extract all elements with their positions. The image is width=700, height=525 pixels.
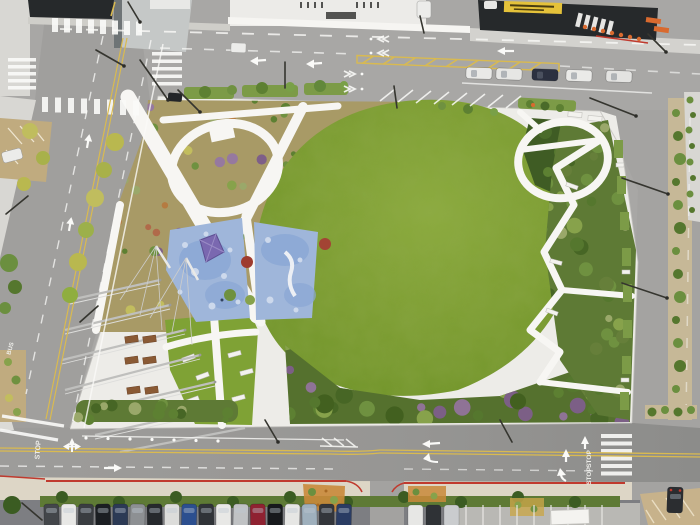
tree (153, 229, 161, 237)
stop-marking-right-1: STOP (586, 450, 593, 468)
median-tree (672, 178, 680, 186)
windshield (46, 508, 57, 513)
hedge-tree (284, 491, 296, 503)
windshield (115, 508, 126, 513)
windshield (611, 73, 617, 80)
windshield (201, 508, 212, 513)
windshield (501, 71, 507, 78)
parked-car (319, 504, 334, 525)
median-tree (673, 338, 683, 348)
parked-car (466, 67, 492, 79)
tree (239, 183, 246, 190)
windshield (218, 508, 229, 513)
tree (433, 406, 446, 419)
hedge-tree (569, 496, 581, 508)
aerial-photo: STOP STOP STOP BUS (0, 0, 700, 525)
parked-car (408, 505, 423, 525)
tree (473, 410, 484, 421)
tree (559, 412, 567, 420)
median-tree (672, 109, 680, 117)
windshield (252, 508, 263, 513)
parked-car (147, 504, 162, 525)
hedge-tree (56, 491, 68, 503)
windshield (166, 508, 177, 513)
corner-car (484, 1, 497, 9)
median-tree (674, 360, 686, 372)
stop-marking-left: STOP (34, 440, 42, 460)
windshield (80, 508, 91, 513)
tree (168, 409, 178, 419)
tree (162, 202, 168, 208)
parked-car (233, 504, 248, 525)
windshield (571, 72, 577, 79)
median-tree (674, 153, 686, 165)
white-shelter (551, 509, 589, 524)
tree (386, 406, 404, 424)
median-tree (672, 385, 680, 393)
tree (122, 249, 127, 254)
windshield (149, 508, 160, 513)
parked-car (216, 504, 231, 525)
red-shrub (319, 238, 331, 250)
parked-car (181, 504, 196, 525)
windshield (63, 508, 74, 513)
parked-car (164, 504, 179, 525)
right-street-car (667, 487, 684, 514)
parked-van (417, 1, 431, 18)
tree (215, 157, 225, 167)
tree (222, 407, 233, 418)
parked-car (44, 504, 59, 525)
tree (306, 382, 317, 393)
windshield (321, 508, 332, 513)
windshield (132, 508, 143, 513)
tree (579, 262, 593, 276)
tree (454, 399, 471, 416)
parked-car (95, 504, 110, 525)
windshield (471, 70, 477, 77)
tree (100, 402, 108, 410)
hedge-tree (170, 491, 182, 503)
tree (286, 366, 294, 374)
stop-marking-right-2: STOP (586, 467, 593, 485)
park (62, 80, 638, 452)
tree (567, 218, 583, 234)
tree (359, 401, 375, 417)
parked-car (336, 504, 351, 525)
windshield (287, 508, 298, 513)
moving-car (231, 43, 246, 53)
parked-car (532, 69, 558, 81)
parked-car (444, 505, 459, 525)
parked-car (130, 504, 145, 525)
windshield (304, 508, 315, 513)
windshield (98, 508, 109, 513)
tree (553, 388, 563, 398)
tree (192, 162, 199, 169)
tree (587, 197, 597, 207)
parked-car (78, 504, 93, 525)
windshield (537, 72, 543, 79)
tree (91, 403, 101, 413)
parked-car (285, 504, 300, 525)
windshield (270, 508, 281, 513)
parked-car (250, 504, 265, 525)
tree (570, 398, 586, 414)
parked-car (113, 504, 128, 525)
building-topleft-dark (28, 0, 114, 19)
median-tree (673, 131, 683, 141)
tree (510, 393, 526, 409)
median-tree (673, 200, 683, 210)
median-tree (672, 247, 680, 255)
dark-car (168, 93, 183, 102)
tree (600, 123, 609, 132)
tree (227, 153, 238, 164)
windshield (235, 508, 246, 513)
parked-car (268, 504, 283, 525)
parked-car (496, 68, 522, 80)
parked-car (61, 504, 76, 525)
tree (309, 397, 320, 408)
parked-car (199, 504, 214, 525)
tree (605, 315, 612, 322)
parked-car (606, 70, 632, 82)
tree (590, 342, 603, 355)
median-tree (672, 316, 680, 324)
tree (145, 224, 151, 230)
parked-car (566, 69, 592, 81)
median-tree (674, 222, 686, 234)
windshield (184, 508, 195, 513)
median-island-trees (645, 405, 697, 419)
tree (599, 277, 614, 292)
tree (590, 152, 598, 160)
tree (570, 237, 584, 251)
tree (155, 401, 166, 412)
parked-car (302, 504, 317, 525)
median-tree (673, 269, 683, 279)
tree (129, 402, 142, 415)
planting-bed (0, 350, 26, 422)
red-shrub (241, 256, 253, 268)
second-row-cars (408, 505, 459, 525)
tree (227, 181, 237, 191)
median-tree (674, 291, 686, 303)
tree (271, 116, 278, 123)
parked-car (426, 505, 441, 525)
tree (257, 154, 267, 164)
windshield (338, 508, 349, 513)
